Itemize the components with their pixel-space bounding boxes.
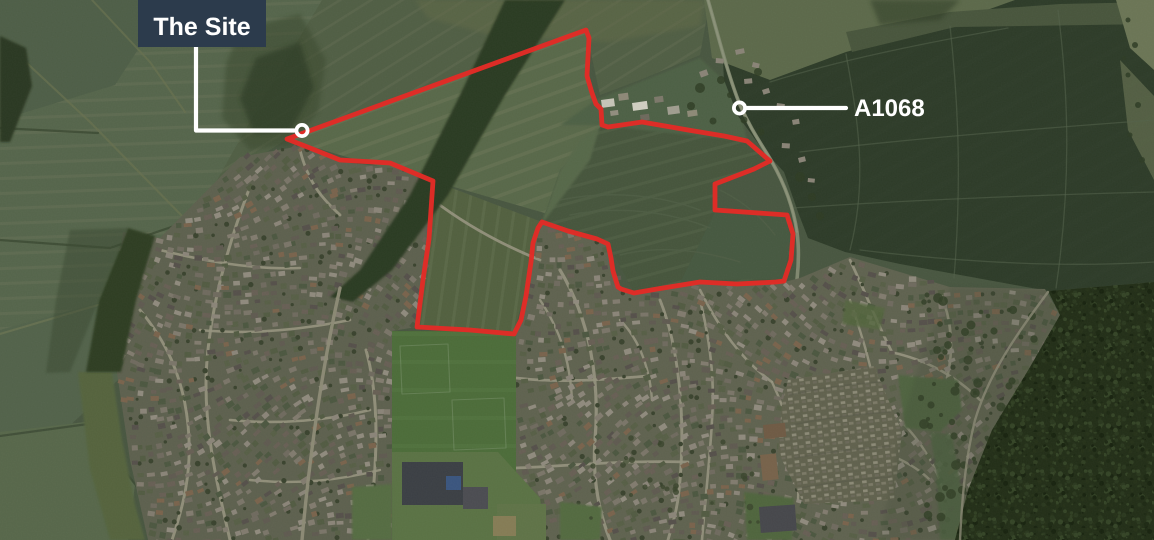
svg-text:A1068: A1068 [854, 95, 925, 122]
svg-text:The Site: The Site [153, 13, 250, 41]
